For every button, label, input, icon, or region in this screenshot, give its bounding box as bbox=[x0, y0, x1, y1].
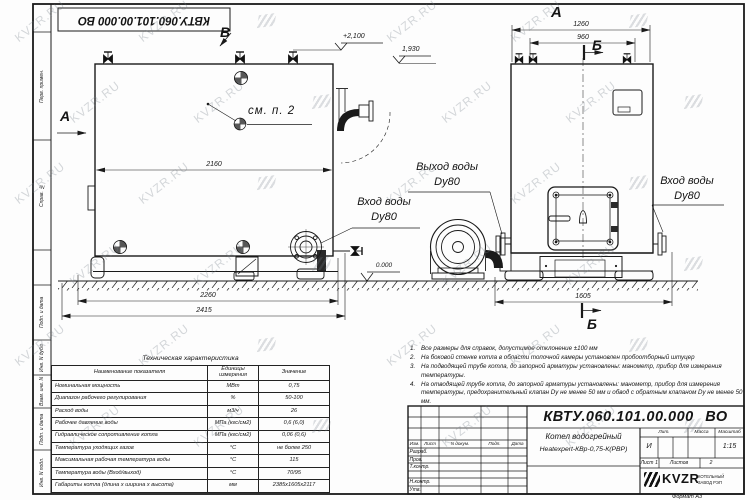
label-inlet-front-line1: Вход воды bbox=[348, 196, 420, 208]
view-marker-a-side: А bbox=[60, 108, 70, 124]
strip-label-inv-dubl: Инв. N дубл. bbox=[34, 340, 50, 375]
spec-row-value: 26 bbox=[259, 406, 329, 418]
top-doc-number: КВТУ.060.101.00.000 ВО bbox=[58, 8, 230, 31]
outlet-flange-side bbox=[496, 233, 511, 255]
note-item-2: 2.На боковой стенке котла в области топо… bbox=[410, 354, 746, 363]
spec-row-value: не более 250 bbox=[259, 443, 329, 455]
tb-role-tkontr: Т.контр. bbox=[410, 464, 430, 470]
tb-mass-label: Масса bbox=[688, 430, 715, 435]
spec-table-grid: Наименование показателя Единицы измерени… bbox=[51, 365, 330, 493]
kvzr-logo-sub2: ЗАВОД РЭП bbox=[698, 480, 722, 485]
tb-role-prov: Пров. bbox=[410, 457, 423, 463]
drawing-sheet: КВТУ.060.101.00.000 ВО Перв. примен. Спр… bbox=[0, 0, 750, 500]
dim-2160: 2160 bbox=[194, 161, 234, 168]
tb-sheets-value: 2 bbox=[700, 460, 722, 466]
tb-rev-col-data: Дата bbox=[508, 441, 527, 446]
elevation-1930: 1,930 bbox=[402, 46, 420, 53]
spec-col-value: Значение bbox=[259, 366, 329, 381]
notes-list: 1.Все размеры для справок, допустимое от… bbox=[410, 345, 746, 407]
spec-row-value: 0,75 bbox=[259, 381, 329, 393]
spec-row-unit: м3/ч bbox=[208, 406, 259, 418]
note-item-3: 3.На подводящей трубе котла, до запорной… bbox=[410, 363, 746, 380]
section-marker-b-bottom: Б bbox=[587, 316, 597, 332]
spec-row-name: Температура уходящих газов bbox=[52, 443, 208, 455]
dim-2260: 2260 bbox=[188, 292, 228, 299]
spec-row-unit: МПа (кгс/см2) bbox=[208, 431, 259, 443]
note-item-1: 1.Все размеры для справок, допустимое от… bbox=[410, 345, 746, 354]
spec-row-unit: МВт bbox=[208, 381, 259, 393]
ground-line bbox=[58, 281, 698, 291]
annotation-lines bbox=[57, 33, 724, 281]
label-inlet-side-line2: Dy80 bbox=[650, 190, 724, 202]
strip-label-podp-data-1: Подп. и дата bbox=[34, 285, 50, 340]
tb-sheet-value: 1 bbox=[654, 460, 659, 466]
label-outlet-line2: Dy80 bbox=[404, 176, 490, 188]
spec-row-unit: % bbox=[208, 393, 259, 405]
spec-row-unit: мм bbox=[208, 480, 259, 491]
spec-col-name: Наименование показателя bbox=[52, 366, 208, 381]
tb-role-utv: Утв. bbox=[410, 487, 421, 493]
spec-row-unit: МПа (кгс/см2) bbox=[208, 418, 259, 430]
tb-sheet-label: Лист bbox=[640, 460, 654, 466]
spec-row-value: 0,06 (0,6) bbox=[259, 431, 329, 443]
spec-row-name: Температура воды (Вход/выход) bbox=[52, 468, 208, 480]
note-item-4: 4.На отводящей трубе котла, до запорной … bbox=[410, 381, 746, 407]
callout-see-note: см. п. 2 bbox=[248, 105, 295, 117]
tb-lit-label: Лит. bbox=[640, 430, 688, 435]
kvzr-logo-text: KVZR bbox=[662, 471, 699, 486]
tb-scale-value: 1:15 bbox=[715, 443, 744, 450]
strip-label-podp-data-2: Подп. и дата bbox=[34, 408, 50, 450]
boiler-front-view bbox=[88, 52, 390, 280]
elevation-plus-2100: +2,100 bbox=[343, 33, 365, 40]
spec-row-unit: °С bbox=[208, 468, 259, 480]
view-marker-a-top: А bbox=[551, 4, 562, 21]
tb-doc-number: КВТУ.060.101.00.000 ВО bbox=[527, 406, 744, 428]
kvzr-logo-icon bbox=[644, 472, 660, 487]
spec-table: Техническая характеристика Наименование … bbox=[51, 355, 330, 493]
label-inlet-side-line1: Вход воды bbox=[650, 175, 724, 187]
tb-sheets-label: Листов bbox=[662, 460, 696, 466]
spec-row-value: 115 bbox=[259, 455, 329, 467]
dim-1260: 1260 bbox=[566, 21, 596, 28]
format-note: Формат А3 bbox=[672, 494, 702, 500]
strip-label-vzam-inv: Взам. инв. N bbox=[34, 375, 50, 408]
spec-row-name: Габариты котла (длина х ширина х высота) bbox=[52, 480, 208, 491]
spec-row-value: 70/95 bbox=[259, 468, 329, 480]
spec-row-name: Расход воды bbox=[52, 406, 208, 418]
dim-1605: 1605 bbox=[563, 293, 603, 300]
tb-product-name-line1: Котел водогрейный bbox=[527, 432, 640, 441]
tb-rev-col-dokum: N докум. bbox=[439, 441, 481, 446]
strip-label-perv-primen: Перв. примен. bbox=[34, 32, 50, 140]
elevation-zero: 0.000 bbox=[367, 262, 401, 269]
label-outlet-line1: Выход воды bbox=[404, 161, 490, 173]
spec-row-value: 50-100 bbox=[259, 393, 329, 405]
tb-product-name-line2: Heatexpert-КВр-0,75-К(РВР) bbox=[527, 446, 640, 453]
dim-960: 960 bbox=[568, 34, 598, 41]
spec-table-title: Техническая характеристика bbox=[51, 355, 330, 365]
tb-role-razrab: Разраб. bbox=[410, 449, 428, 455]
spec-row-value: 0,6 (6,0) bbox=[259, 418, 329, 430]
nameplate bbox=[613, 90, 642, 115]
kvzr-logo-sub1: КОТЕЛЬНЫЙ bbox=[698, 474, 724, 479]
inlet-flange-side bbox=[653, 233, 666, 255]
tb-rev-col-podp: Подп. bbox=[481, 441, 508, 446]
tb-scale-label: Масштаб bbox=[715, 430, 744, 435]
spec-col-unit: Единицы измерения bbox=[208, 366, 259, 381]
dim-2415: 2415 bbox=[184, 307, 224, 314]
blower-fan bbox=[431, 220, 512, 280]
view-marker-v: В bbox=[220, 24, 230, 40]
spec-row-value: 2385х1605х2117 bbox=[259, 480, 329, 491]
dimension-lines bbox=[62, 25, 672, 320]
spec-row-name: Номинальная мощность bbox=[52, 381, 208, 393]
tb-role-nkontr: Н.контр. bbox=[410, 479, 431, 485]
label-inlet-front-line2: Dy80 bbox=[348, 211, 420, 223]
spec-row-name: Гидравлическое сопротивление котла bbox=[52, 431, 208, 443]
strip-label-sprav-n: Справ. № bbox=[34, 140, 50, 250]
spec-row-name: Диапазон рабочего регулирования bbox=[52, 393, 208, 405]
strip-label-inv-podl: Инв. N подл. bbox=[34, 450, 50, 494]
spec-row-unit: °С bbox=[208, 455, 259, 467]
spec-row-unit: °С bbox=[208, 443, 259, 455]
spec-row-name: Максимальная рабочая температура воды bbox=[52, 455, 208, 467]
tb-rev-col-list: Лист bbox=[421, 441, 439, 446]
tb-rev-col-izm: Изм. bbox=[408, 441, 421, 446]
spec-row-name: Рабочее давление воды bbox=[52, 418, 208, 430]
tb-lit-value: И bbox=[640, 441, 658, 450]
